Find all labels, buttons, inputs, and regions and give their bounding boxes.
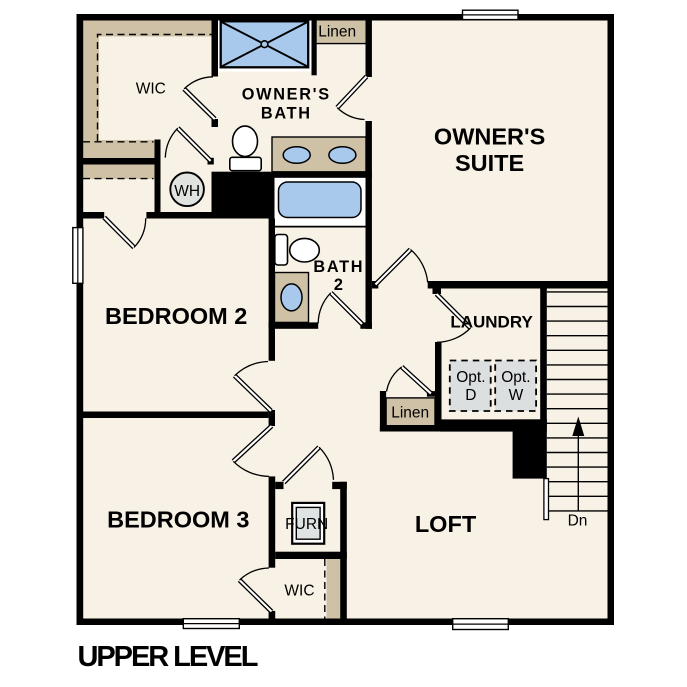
svg-text:FURN: FURN (285, 516, 328, 533)
svg-text:Linen: Linen (318, 23, 356, 40)
svg-text:2: 2 (334, 276, 345, 294)
svg-text:Dn: Dn (568, 513, 588, 530)
svg-text:Linen: Linen (391, 405, 429, 422)
svg-text:LOFT: LOFT (415, 511, 477, 537)
svg-text:UPPER LEVEL: UPPER LEVEL (78, 641, 258, 673)
svg-text:D: D (465, 387, 476, 404)
svg-text:WH: WH (174, 183, 200, 200)
svg-text:BEDROOM 3: BEDROOM 3 (107, 507, 249, 533)
svg-text:LAUNDRY: LAUNDRY (450, 313, 533, 332)
svg-text:OWNER'S: OWNER'S (434, 124, 545, 150)
svg-text:BATH: BATH (261, 105, 312, 123)
svg-text:WIC: WIC (136, 80, 166, 97)
svg-text:BATH: BATH (313, 258, 364, 276)
svg-text:SUITE: SUITE (455, 150, 524, 176)
svg-text:WIC: WIC (284, 582, 314, 599)
svg-text:OWNER'S: OWNER'S (242, 86, 331, 104)
svg-text:Opt.: Opt. (501, 369, 530, 386)
svg-text:BEDROOM 2: BEDROOM 2 (105, 303, 247, 329)
svg-text:Opt.: Opt. (456, 369, 485, 386)
svg-text:W: W (509, 387, 524, 404)
